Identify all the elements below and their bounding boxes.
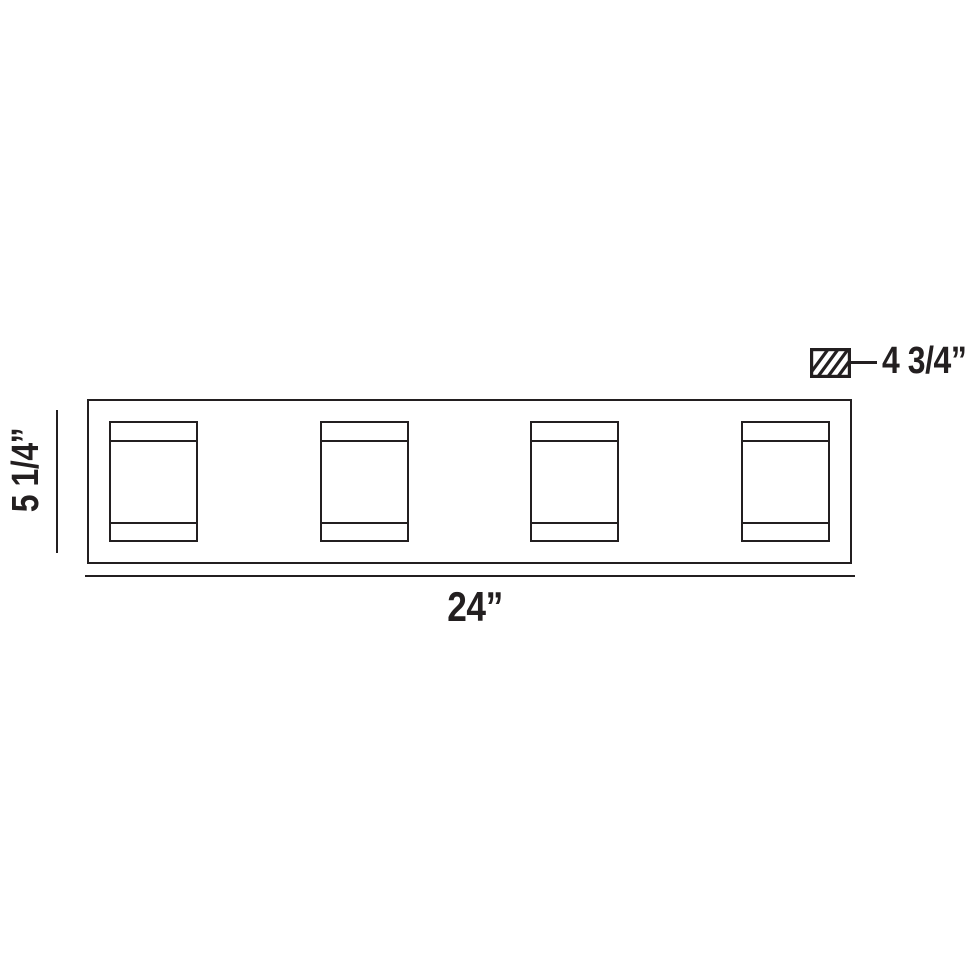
shade-top-band-line (322, 440, 407, 442)
shade-outline (320, 421, 409, 542)
shade-bottom-band-line (743, 522, 828, 524)
height-dimension-label: 5 1/4” (7, 428, 45, 512)
dimension-diagram: 4 3/4” 5 1/4” 24” (0, 0, 977, 977)
shade-top-band-line (532, 440, 617, 442)
width-dimension-line (85, 575, 855, 577)
diagonal-hatch-swatch-icon (810, 348, 851, 378)
shade-top-band-line (111, 440, 196, 442)
shade-bottom-band-line (322, 522, 407, 524)
height-dimension-line (56, 410, 58, 553)
shade-outline (741, 421, 830, 542)
shade-bottom-band-line (532, 522, 617, 524)
shade-outline (530, 421, 619, 542)
width-dimension-label: 24” (447, 586, 503, 628)
depth-leader-line (849, 361, 877, 364)
shade-outline (109, 421, 198, 542)
shade-bottom-band-line (111, 522, 196, 524)
fixture-body-outline (87, 399, 852, 564)
shade-top-band-line (743, 440, 828, 442)
depth-dimension-label: 4 3/4” (882, 342, 966, 380)
